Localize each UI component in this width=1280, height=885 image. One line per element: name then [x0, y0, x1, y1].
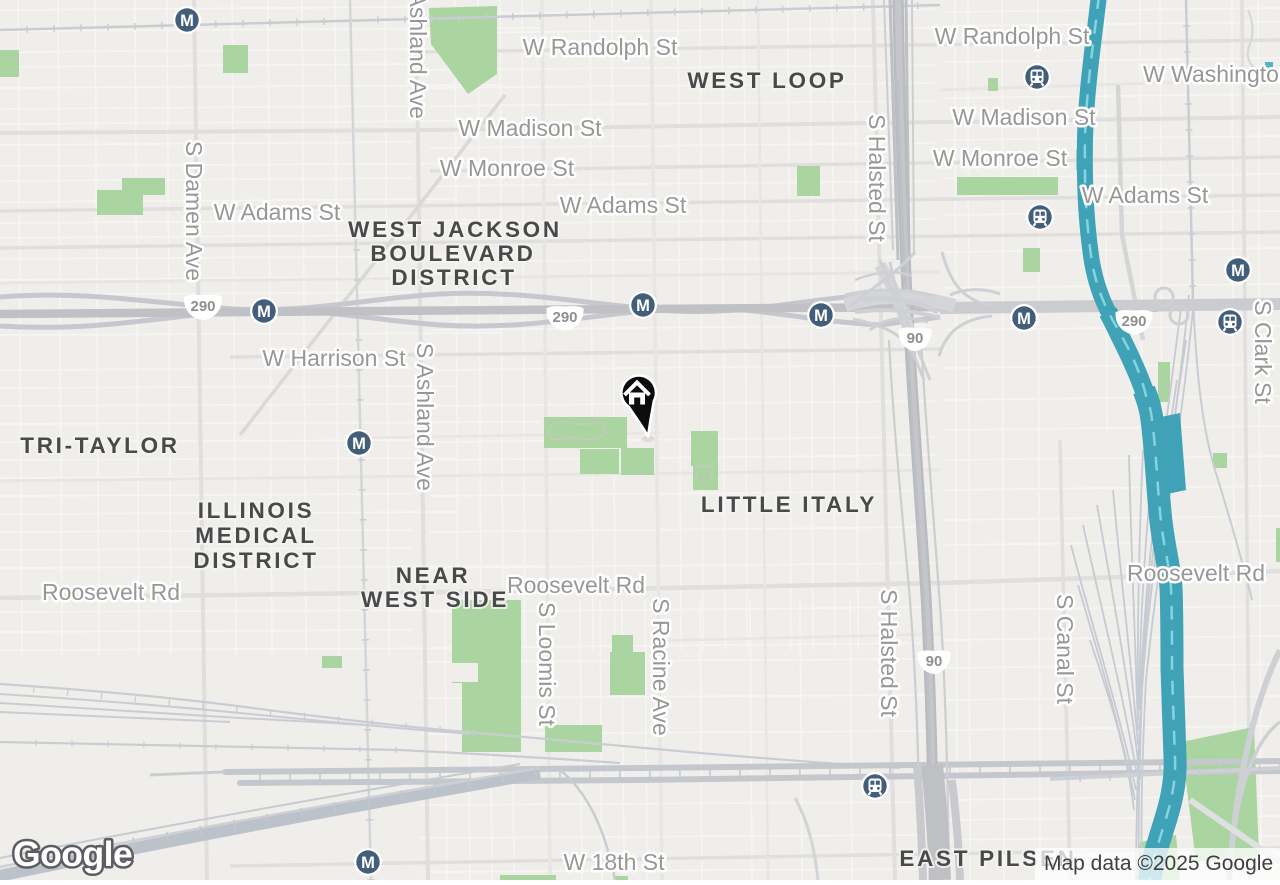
svg-text:W Washington St: W Washington St [1143, 61, 1280, 87]
svg-text:Roosevelt Rd: Roosevelt Rd [42, 579, 180, 605]
svg-text:W Adams St: W Adams St [560, 192, 687, 218]
svg-text:S Clark St: S Clark St [1250, 300, 1276, 404]
svg-text:NEAR: NEAR [396, 563, 471, 588]
svg-text:Roosevelt Rd: Roosevelt Rd [507, 572, 645, 598]
svg-text:S Racine Ave: S Racine Ave [648, 598, 674, 736]
svg-text:M: M [1017, 310, 1031, 328]
svg-text:W Madison St: W Madison St [952, 104, 1096, 130]
svg-text:S Canal St: S Canal St [1052, 594, 1078, 705]
svg-text:TRI-TAYLOR: TRI-TAYLOR [20, 433, 180, 458]
svg-text:M: M [257, 303, 271, 321]
svg-text:W Madison St: W Madison St [458, 115, 602, 141]
svg-text:M: M [352, 435, 366, 453]
svg-text:W Randolph St: W Randolph St [523, 34, 678, 60]
svg-text:M: M [814, 307, 828, 325]
svg-text:WEST SIDE: WEST SIDE [361, 587, 509, 612]
svg-text:WEST LOOP: WEST LOOP [687, 68, 846, 93]
svg-text:W Harrison St: W Harrison St [262, 345, 406, 371]
svg-text:DISTRICT: DISTRICT [193, 548, 318, 573]
svg-text:S Damen Ave: S Damen Ave [181, 141, 207, 281]
svg-text:S Ashland Ave: S Ashland Ave [412, 343, 438, 491]
svg-text:290: 290 [190, 298, 215, 315]
svg-text:W 18th St: W 18th St [564, 849, 666, 875]
svg-text:90: 90 [907, 330, 924, 347]
svg-text:Roosevelt Rd: Roosevelt Rd [1127, 560, 1265, 586]
svg-text:ILLINOIS: ILLINOIS [198, 498, 315, 523]
svg-text:M: M [636, 297, 650, 315]
svg-text:BOULEVARD: BOULEVARD [370, 241, 535, 266]
svg-text:S Halsted St: S Halsted St [864, 114, 890, 242]
svg-text:M: M [1231, 262, 1245, 280]
svg-text:W Adams St: W Adams St [1082, 182, 1209, 208]
svg-text:S Halsted St: S Halsted St [876, 589, 902, 717]
svg-text:MEDICAL: MEDICAL [195, 523, 316, 548]
svg-text:W Randolph St: W Randolph St [935, 23, 1090, 49]
svg-text:W Adams St: W Adams St [214, 199, 341, 225]
svg-text:WEST JACKSON: WEST JACKSON [348, 217, 562, 242]
svg-text:S Loomis St: S Loomis St [534, 602, 560, 727]
svg-text:90: 90 [926, 653, 943, 670]
svg-text:W Monroe St: W Monroe St [440, 155, 575, 181]
svg-text:DISTRICT: DISTRICT [391, 265, 516, 290]
svg-text:M: M [361, 854, 375, 872]
svg-text:M: M [180, 12, 194, 30]
svg-text:290: 290 [1121, 313, 1146, 330]
svg-text:LITTLE ITALY: LITTLE ITALY [701, 492, 877, 517]
svg-text:290: 290 [552, 309, 577, 326]
svg-text:S Ashland Ave: S Ashland Ave [405, 0, 431, 119]
svg-text:Google: Google [13, 834, 132, 874]
svg-text:Map data ©2025 Google: Map data ©2025 Google [1044, 852, 1273, 875]
svg-text:W Monroe St: W Monroe St [933, 145, 1068, 171]
